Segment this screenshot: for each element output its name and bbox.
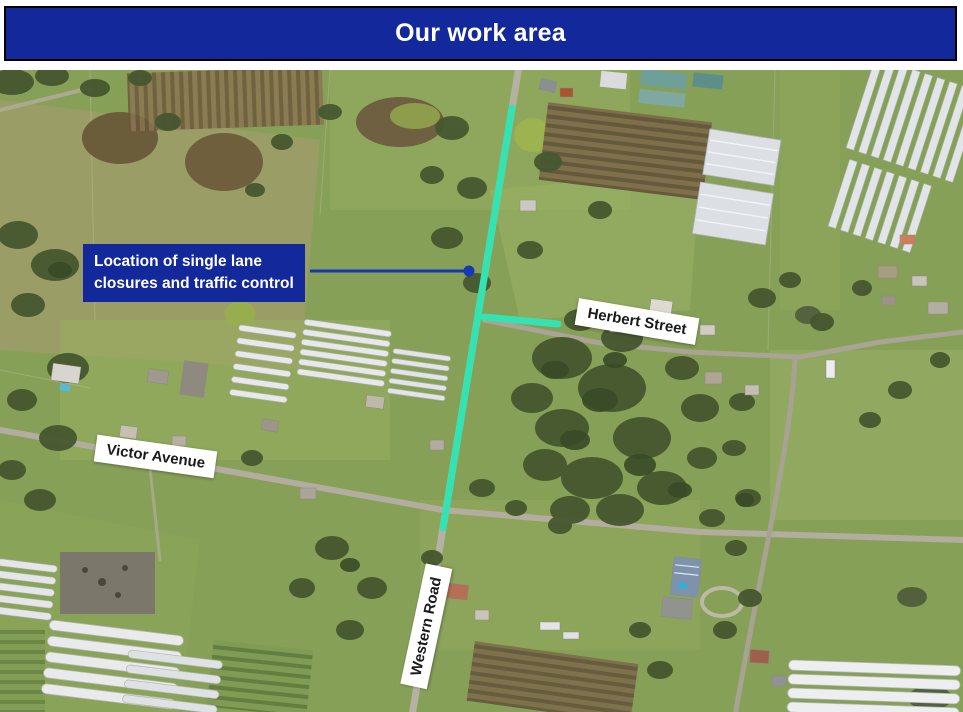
callout-text-line2: closures and traffic control — [94, 273, 294, 295]
callout-box: Location of single lane closures and tra… — [83, 244, 305, 302]
title-banner: Our work area — [4, 6, 957, 61]
callout-connector-dot — [464, 266, 475, 277]
callout-text-line1: Location of single lane — [94, 251, 294, 273]
page-title: Our work area — [395, 19, 566, 48]
aerial-map — [0, 70, 963, 712]
aerial-imagery — [0, 70, 963, 712]
